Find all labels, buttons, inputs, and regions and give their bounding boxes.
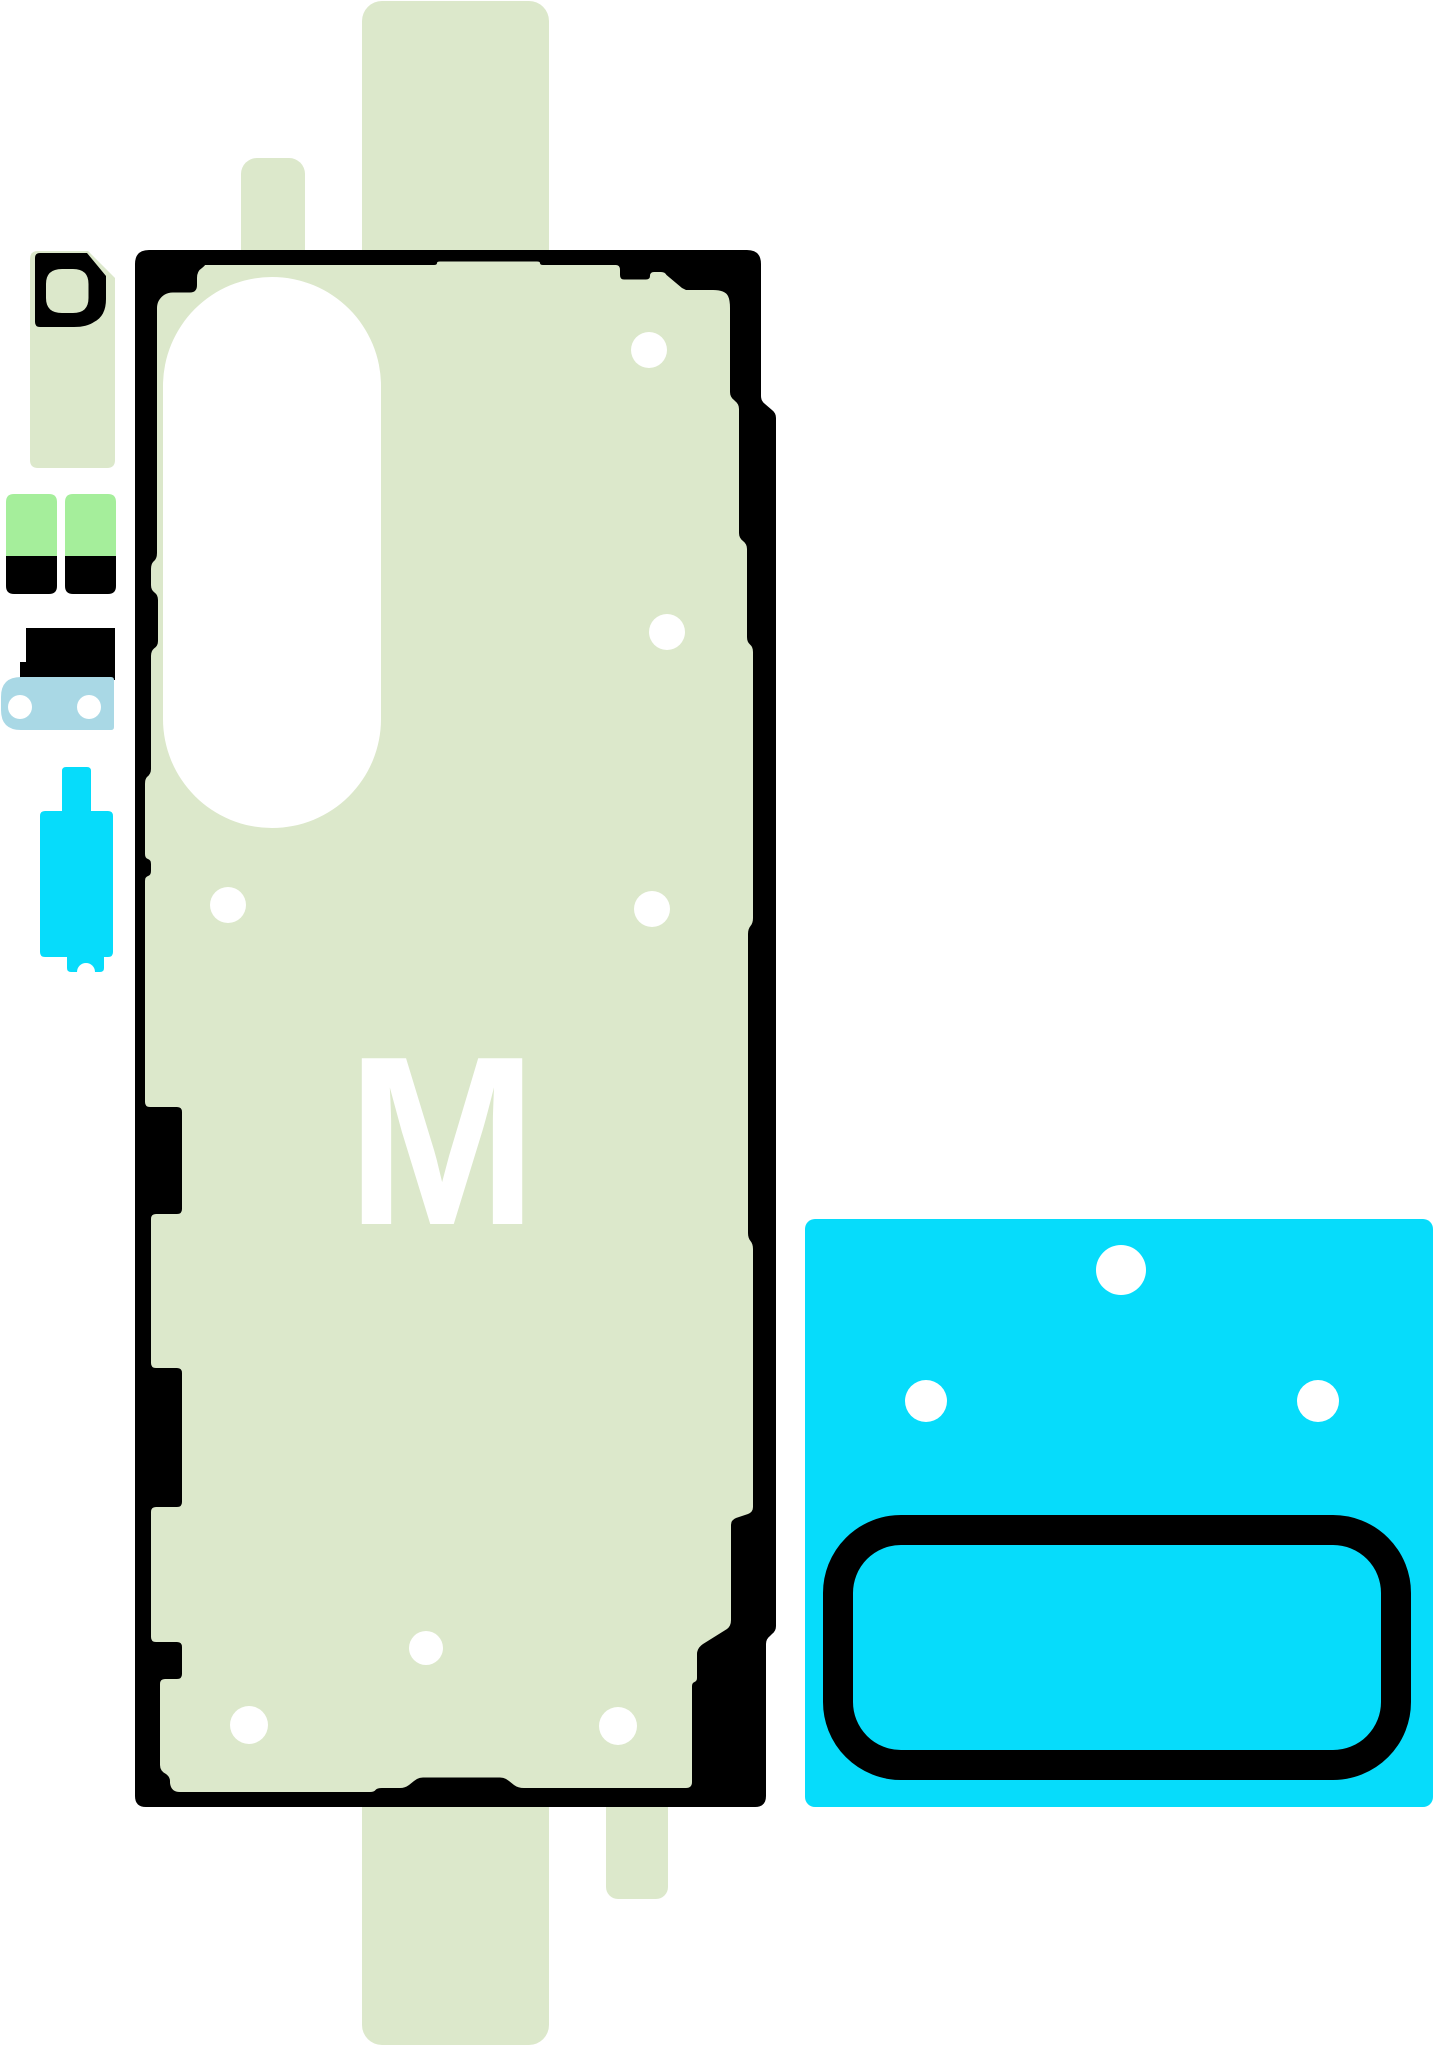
svg-text:M: M <box>346 1006 537 1275</box>
